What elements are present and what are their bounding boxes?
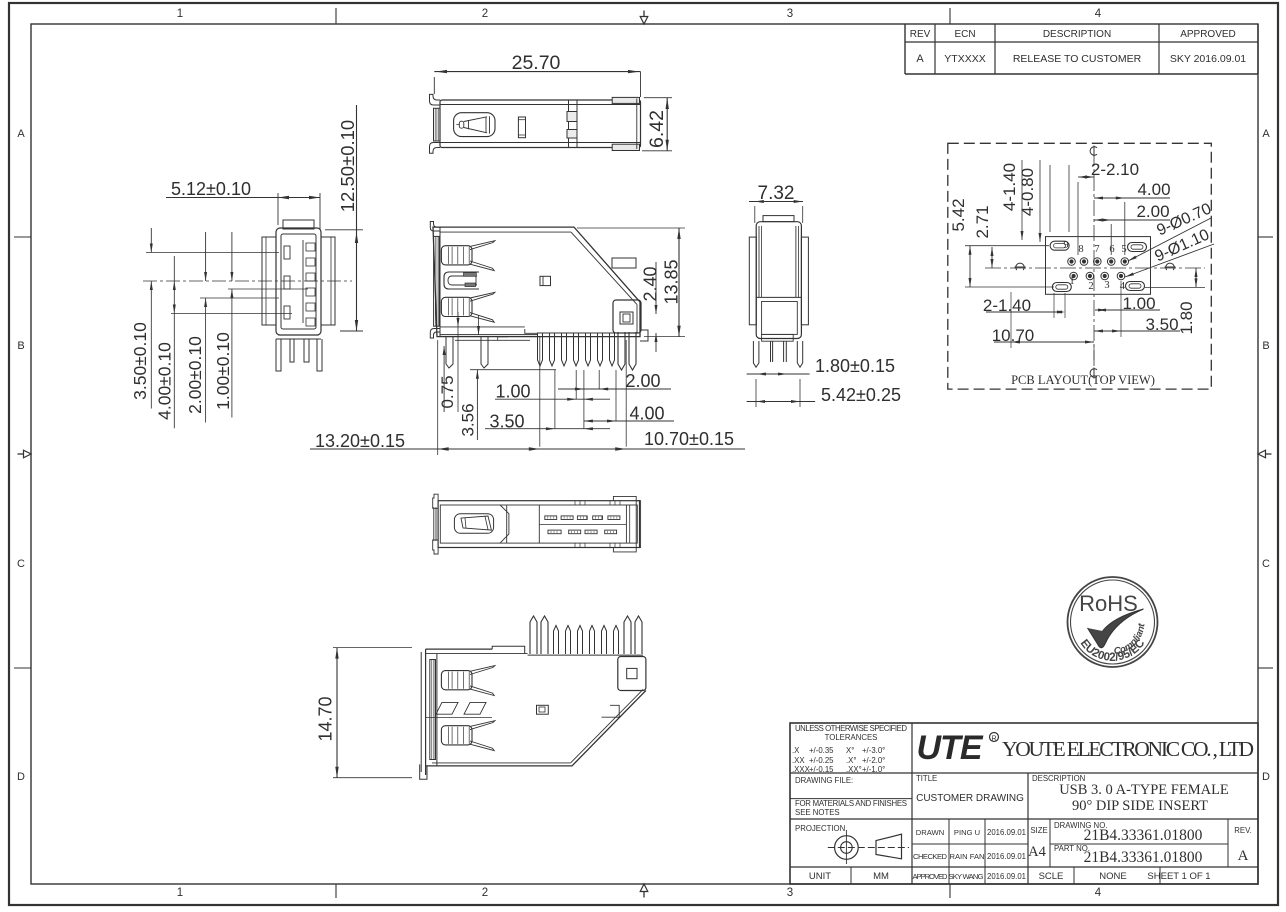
svg-text:1.80±0.15: 1.80±0.15 [815,356,895,376]
svg-text:FOR MATERIALS AND FINISHES: FOR MATERIALS AND FINISHES [795,799,907,808]
svg-text:4.00: 4.00 [629,404,664,424]
svg-text:B: B [1262,340,1269,352]
svg-text:A4: A4 [1028,844,1046,860]
svg-text:2016.09.01: 2016.09.01 [987,872,1026,881]
svg-text:REV.: REV. [1234,826,1251,835]
svg-text:DRAWN: DRAWN [916,828,944,837]
svg-text:6.42: 6.42 [646,110,668,148]
svg-text:UTE: UTE [917,729,984,767]
svg-text:RELEASE TO CUSTOMER: RELEASE TO CUSTOMER [1013,53,1142,65]
svg-text:DESCRIPTION: DESCRIPTION [1043,29,1111,40]
svg-text:+/-1.0°: +/-1.0° [862,765,885,774]
svg-text:4: 4 [1095,8,1102,20]
svg-text:SEE NOTES: SEE NOTES [795,808,840,817]
svg-text:UNLESS OTHERWISE SPECIFIED: UNLESS OTHERWISE SPECIFIED [795,724,907,733]
svg-text:+/-0.35: +/-0.35 [809,746,834,755]
svg-text:2.00±0.10: 2.00±0.10 [185,336,205,414]
svg-text:TITLE: TITLE [916,774,937,783]
svg-text:.XX: .XX [792,756,805,765]
svg-text:9: 9 [1063,240,1068,251]
svg-text:TOLERANCES: TOLERANCES [825,733,878,742]
svg-text:2-2.10: 2-2.10 [1091,160,1139,179]
svg-text:3: 3 [1104,280,1109,291]
svg-text:PCB LAYOUT(TOP VIEW): PCB LAYOUT(TOP VIEW) [1011,373,1155,387]
svg-text:ECN: ECN [954,29,975,40]
svg-text:2: 2 [482,887,488,899]
svg-text:2.00: 2.00 [625,371,660,391]
svg-text:SHEET 1 OF 1: SHEET 1 OF 1 [1147,871,1210,882]
svg-text:1.00±0.10: 1.00±0.10 [213,332,233,410]
svg-text:5.42: 5.42 [949,198,968,231]
svg-text:MM: MM [873,871,889,882]
svg-text:.X: .X [792,746,800,755]
svg-text:+/-3.0°: +/-3.0° [862,746,885,755]
svg-text:4-1.40: 4-1.40 [1000,163,1019,211]
svg-text:3.56: 3.56 [459,403,478,436]
svg-text:X°: X° [846,746,854,755]
svg-text:4-0.80: 4-0.80 [1018,168,1037,216]
svg-text:1: 1 [177,887,183,899]
svg-text:5.42±0.25: 5.42±0.25 [821,385,901,405]
svg-text:YOUTE ELECTRONIC CO. , LTD: YOUTE ELECTRONIC CO. , LTD [1002,737,1254,761]
svg-text:2.71: 2.71 [973,205,992,238]
svg-text:RAIN FAN: RAIN FAN [949,852,984,861]
svg-text:.X°: .X° [846,756,857,765]
svg-text:.XXX: .XXX [792,765,811,774]
svg-text:REV: REV [910,29,931,40]
svg-text:C: C [17,558,25,570]
svg-text:+/-0.15: +/-0.15 [809,765,834,774]
svg-text:CUSTOMER DRAWING: CUSTOMER DRAWING [916,793,1024,804]
svg-text:7: 7 [1094,244,1099,255]
svg-text:21B4.33361.01800: 21B4.33361.01800 [1084,827,1203,844]
svg-text:YTXXXX: YTXXXX [944,53,985,65]
svg-text:C: C [1262,558,1270,570]
svg-text:RoHS: RoHS [1079,591,1138,616]
svg-text:UNIT: UNIT [809,871,831,882]
svg-text:0.75: 0.75 [438,375,457,408]
svg-text:12.50±0.10: 12.50±0.10 [337,120,358,212]
svg-text:5.12±0.10: 5.12±0.10 [171,179,251,199]
svg-text:A: A [1238,848,1249,864]
svg-text:3: 3 [787,8,793,20]
svg-text:6: 6 [1109,244,1114,255]
svg-text:SKY WANG: SKY WANG [949,872,984,881]
svg-text:D: D [1262,771,1270,783]
svg-text:APPROVED: APPROVED [913,872,949,881]
svg-text:NONE: NONE [1099,871,1126,882]
svg-text:PROJECTION: PROJECTION [795,824,845,833]
svg-text:CHECKED: CHECKED [913,852,948,861]
svg-text:+/-0.25: +/-0.25 [809,756,834,765]
svg-text:21B4.33361.01800: 21B4.33361.01800 [1084,849,1203,866]
svg-text:1: 1 [177,8,183,20]
svg-text:4.00: 4.00 [1137,180,1170,199]
svg-text:2: 2 [482,8,488,20]
svg-text:USB 3. 0 A-TYPE FEMALE: USB 3. 0 A-TYPE FEMALE [1059,782,1229,798]
svg-text:A: A [17,128,25,140]
svg-text:4.00±0.10: 4.00±0.10 [155,342,175,420]
svg-text:SIZE: SIZE [1030,826,1047,835]
svg-text:10.70±0.15: 10.70±0.15 [644,429,734,449]
svg-text:B: B [17,340,24,352]
svg-text:1.80: 1.80 [1177,301,1196,334]
svg-text:PING U: PING U [954,828,980,837]
svg-text:1: 1 [1069,276,1074,287]
svg-text:A: A [916,53,924,65]
svg-text:DRAWING FILE:: DRAWING FILE: [795,776,853,785]
svg-text:4: 4 [1095,887,1102,899]
svg-text:5: 5 [1121,244,1126,255]
svg-text:2016.09.01: 2016.09.01 [987,828,1026,837]
svg-text:A: A [1262,128,1270,140]
svg-text:3.50±0.10: 3.50±0.10 [130,322,150,400]
svg-text:8: 8 [1078,244,1083,255]
svg-text:.XX°: .XX° [846,765,862,774]
svg-text:D: D [17,771,25,783]
svg-text:SKY 2016.09.01: SKY 2016.09.01 [1170,53,1246,65]
svg-text:14.70: 14.70 [316,696,336,741]
svg-text:2.00: 2.00 [1136,202,1169,221]
svg-text:2.40: 2.40 [641,266,661,301]
svg-text:2: 2 [1088,281,1093,292]
svg-text:90° DIP SIDE INSERT: 90° DIP SIDE INSERT [1072,798,1208,814]
svg-text:3: 3 [787,887,793,899]
svg-text:25.70: 25.70 [512,52,561,74]
svg-text:13.20±0.15: 13.20±0.15 [315,431,405,451]
svg-text:+/-2.0°: +/-2.0° [862,756,885,765]
svg-text:R: R [991,736,996,743]
svg-text:APPROVED: APPROVED [1180,29,1236,40]
svg-text:1.00: 1.00 [495,382,530,402]
svg-text:SCLE: SCLE [1039,871,1064,882]
svg-text:2016.09.01: 2016.09.01 [987,852,1026,861]
